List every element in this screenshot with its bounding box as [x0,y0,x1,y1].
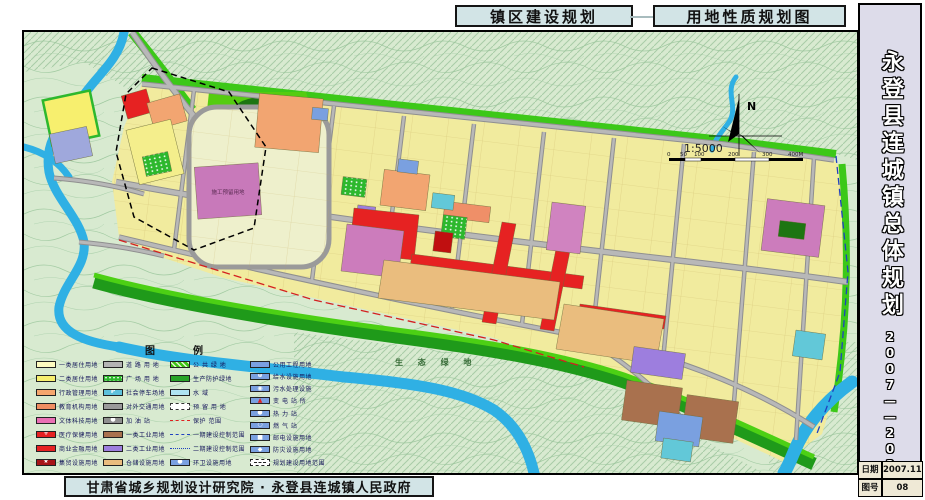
date-label: 日期 [858,461,882,479]
legend-columns: 一类居住用地二类居住用地行政管理用地教育机构用地文体科技用地+医疗保健用地商业金… [36,360,312,466]
legend-swatch [36,375,56,382]
legend-label: 一期建设控制范围 [193,430,245,439]
legend-item: 二期建设控制范围 [170,444,245,452]
legend-label: 集贸设施用地 [59,458,98,467]
legend-item: 二类居住用地 [36,374,98,382]
legend-item: 仓储设施用地 [103,458,165,466]
sheet-title-right-text: 用地性质规划图 [686,6,812,27]
scale-tick-400: 400M [788,152,803,158]
legend-title: 图 例 [36,342,312,357]
legend-swatch: ◆ [250,446,270,453]
planning-map: 生 态 绿 地 施工预留用地 N 1:5000 0 50 [22,30,859,475]
scale-tick-0: 0 [667,152,671,158]
legend-swatch [103,403,123,410]
legend-label: 商业金融用地 [59,444,98,453]
legend-swatch [103,431,123,438]
reserved-block-label: 施工预留用地 [211,188,245,196]
sheet-title-right: 用地性质规划图 [653,5,846,27]
legend-swatch: P [103,389,123,396]
legend-item: 保护 范围 [170,416,245,424]
legend-swatch [250,459,270,466]
legend-item: ●环卫设施用地 [170,458,245,466]
legend-item: ★集贸设施用地 [36,458,98,466]
legend-swatch: ⊕ [250,373,270,380]
legend-swatch [170,389,190,396]
legend-swatch [170,403,190,410]
legend-item: 水 域 [170,388,245,396]
sheet-title-left-text: 镇区建设规划 [490,6,598,27]
legend-item: 生产防护绿地 [170,374,245,382]
legend-label: 给水设施用地 [273,372,312,381]
scale-tick-50: 50 [680,152,687,158]
legend-item: ○燃 气 站 [250,421,325,429]
legend-label: 公 共 绿 地 [193,360,226,369]
legend-item: ●热 力 站 [250,409,325,417]
sheetno-label: 图号 [858,479,882,497]
legend-label: 公用工程用地 [273,360,312,369]
legend-item: P社会停车场地 [103,388,165,396]
legend-label: 广 场 用 地 [126,374,159,383]
legend-item: 教育机构用地 [36,402,98,410]
legend-item: 行政管理用地 [36,388,98,396]
titleblock-table: 日期 2007.11 图号 08 [858,461,922,497]
legend-column-1: 一类居住用地二类居住用地行政管理用地教育机构用地文体科技用地+医疗保健用地商业金… [36,360,98,466]
scale-tick-200: 200 [728,152,739,158]
legend-label: 行政管理用地 [59,388,98,397]
legend-column-3: 公 共 绿 地生产防护绿地水 域预 留 用 地保护 范围一期建设控制范围二期建设… [170,360,245,466]
legend-swatch [103,375,123,382]
legend-swatch [170,445,190,452]
legend-label: 邮电设施用地 [273,433,312,442]
legend-swatch [36,445,56,452]
legend-item: 商业金融用地 [36,444,98,452]
legend-item: 二类工业用地 [103,444,165,452]
legend-label: 保护 范围 [193,416,221,425]
legend-label: 二类工业用地 [126,444,165,453]
legend-item: ◉污水处理设施 [250,385,325,393]
legend-swatch [103,445,123,452]
legend-item: ⊕给水设施用地 [250,372,325,380]
legend-swatch: ● [250,410,270,417]
legend-item: 道 路 用 地 [103,360,165,368]
legend-item: 一期建设控制范围 [170,430,245,438]
legend-label: 教育机构用地 [59,402,98,411]
legend-swatch: + [36,431,56,438]
legend-item: ■邮电设施用地 [250,434,325,442]
legend-swatch: ● [103,417,123,424]
legend-swatch: ■ [250,434,270,441]
legend-column-4: 公用工程用地⊕给水设施用地◉污水处理设施▲变 电 站 所●热 力 站○燃 气 站… [250,360,325,466]
legend-label: 社会停车场地 [126,388,165,397]
legend-label: 道 路 用 地 [126,360,159,369]
legend-item: 文体科技用地 [36,416,98,424]
legend-label: 预 留 用 地 [193,402,226,411]
legend-swatch [36,389,56,396]
legend-swatch: ○ [250,422,270,429]
legend-swatch: ▲ [250,397,270,404]
legend-item: 预 留 用 地 [170,402,245,410]
legend-item: 广 场 用 地 [103,374,165,382]
legend-label: 二类居住用地 [59,374,98,383]
legend-item: 公用工程用地 [250,360,325,368]
legend-item: ●加 油 站 [103,416,165,424]
legend-swatch: ◉ [250,385,270,392]
legend-item: 对外交通用地 [103,402,165,410]
legend-label: 热 力 站 [273,409,297,418]
legend-label: 医疗保健用地 [59,430,98,439]
plan-sheet: 镇区建设规划 用地性质规划图 [0,0,925,500]
legend-swatch [36,361,56,368]
legend-item: +医疗保健用地 [36,430,98,438]
credit-box: 甘肃省城乡规划设计研究院 · 永登县连城镇人民政府 [64,476,434,497]
title-block-sidebar: 永登县连城镇总体规划 2007——2020 日期 2007.11 图号 08 [858,3,922,497]
legend-item: 规划建设用地范围 [250,458,325,466]
legend-swatch [103,361,123,368]
title-connector-line [630,16,655,18]
title-block-inner: 永登县连城镇总体规划 2007——2020 [860,5,920,495]
north-label: N [747,100,756,113]
legend-item: 公 共 绿 地 [170,360,245,368]
legend-swatch [170,431,190,438]
legend: 图 例 一类居住用地二类居住用地行政管理用地教育机构用地文体科技用地+医疗保健用… [36,342,312,470]
legend-label: 加 油 站 [126,416,150,425]
legend-swatch [36,417,56,424]
legend-swatch [170,375,190,382]
legend-label: 污水处理设施 [273,384,312,393]
legend-item: ◆防灾设施用地 [250,446,325,454]
legend-label: 防灾设施用地 [273,445,312,454]
legend-swatch: ● [170,459,190,466]
legend-swatch [36,403,56,410]
credit-text: 甘肃省城乡规划设计研究院 · 永登县连城镇人民政府 [87,477,412,496]
scale-tick-300: 300 [762,152,773,158]
legend-swatch [250,361,270,368]
eco-green-label: 生 态 绿 地 [395,357,477,367]
legend-label: 文体科技用地 [59,416,98,425]
legend-label: 水 域 [193,388,208,397]
legend-swatch [103,459,123,466]
legend-label: 对外交通用地 [126,402,165,411]
legend-label: 燃 气 站 [273,421,297,430]
legend-label: 生产防护绿地 [193,374,232,383]
legend-swatch [170,417,190,424]
legend-label: 规划建设用地范围 [273,458,325,467]
legend-label: 环卫设施用地 [193,458,232,467]
scale-tick-100: 100 [694,152,705,158]
date-value: 2007.11 [882,461,923,479]
legend-label: 二期建设控制范围 [193,444,245,453]
legend-label: 仓储设施用地 [126,458,165,467]
sheetno-value: 08 [882,479,923,497]
sheet-title-left: 镇区建设规划 [455,5,633,27]
legend-label: 一类工业用地 [126,430,165,439]
legend-column-2: 道 路 用 地广 场 用 地P社会停车场地对外交通用地●加 油 站一类工业用地二… [103,360,165,466]
legend-label: 一类居住用地 [59,360,98,369]
project-title-vertical: 永登县连城镇总体规划 [874,50,906,320]
legend-swatch [170,361,190,368]
legend-item: 一类工业用地 [103,430,165,438]
legend-label: 变 电 站 所 [273,396,306,405]
legend-item: 一类居住用地 [36,360,98,368]
legend-swatch: ★ [36,459,56,466]
legend-item: ▲变 电 站 所 [250,397,325,405]
